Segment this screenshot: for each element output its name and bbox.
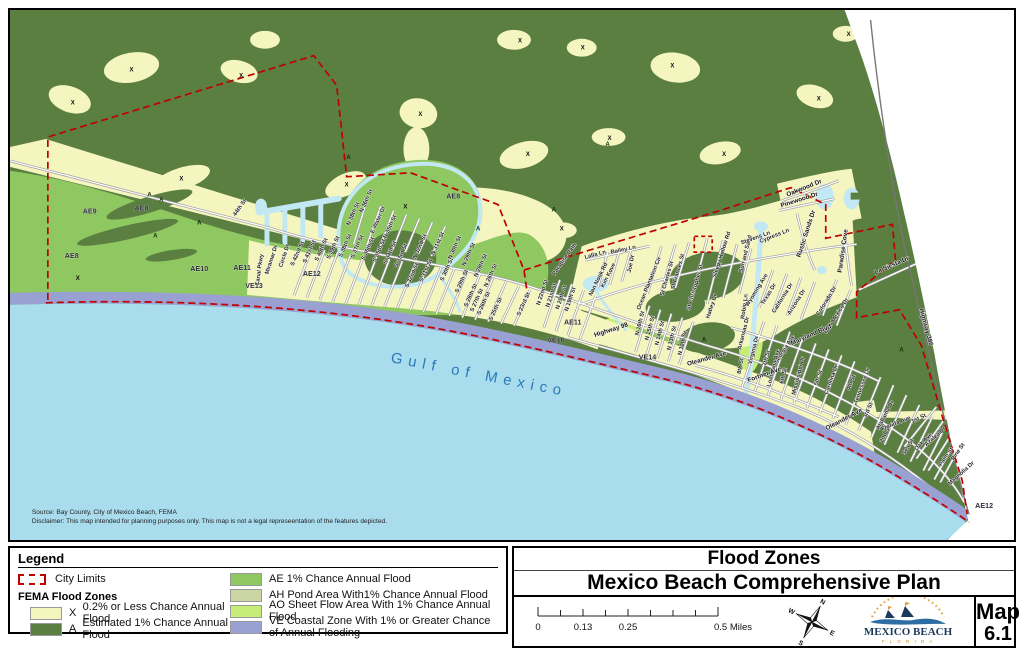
logo-boat-2: [901, 606, 914, 617]
zl-text: AE10: [190, 265, 208, 273]
map-title: Flood Zones: [514, 548, 1014, 571]
scale-0: 0: [535, 622, 540, 633]
legend-item-a: A Estimated 1% Chance Annual Flood: [30, 621, 230, 637]
xm-text: X: [581, 46, 585, 52]
xm-text: X: [403, 205, 407, 211]
scale-025: 0.25: [619, 622, 638, 633]
logo-boat-1: [885, 610, 895, 618]
zone-a-label: Estimated 1% Chance Annual Flood: [82, 617, 230, 641]
zone-ae-swatch: [230, 573, 262, 586]
compass-n: N: [819, 598, 827, 607]
scale-05-miles: 0.5 Miles: [714, 622, 752, 633]
map-number-label: Map: [976, 600, 1020, 623]
am-text: A: [147, 192, 152, 199]
xm-text: X: [722, 152, 726, 158]
mexico-beach-logo: MEXICO BEACH F L O R I D A: [856, 597, 960, 647]
xm-text: X: [179, 177, 183, 183]
xm-text: X: [817, 96, 821, 102]
zone-a-code: A: [69, 623, 82, 635]
compass-e: E: [828, 629, 836, 638]
zl-text: AE8: [135, 204, 149, 212]
legend-title: Legend: [18, 551, 498, 568]
scale-013: 0.13: [574, 622, 593, 633]
flood-zone-map: Gulf of Mexico AE9AE8AE8AE10AE11VE13AE12…: [8, 8, 1016, 542]
zone-ae-label: AE 1% Chance Annual Flood: [269, 573, 411, 585]
city-limits-icon: [18, 574, 46, 585]
xm-text: X: [130, 68, 134, 74]
map-number-value: 6.1: [984, 623, 1012, 645]
compass-rose-icon: N E S W: [780, 597, 844, 647]
xm-text: X: [76, 276, 80, 282]
compass-s: S: [797, 639, 805, 647]
map-number-box: Map 6.1: [974, 597, 1020, 647]
legend-city-limits-row: City Limits: [18, 571, 230, 587]
zone-a-swatch: [30, 623, 62, 636]
am-text: A: [153, 232, 158, 239]
city-limits-label: City Limits: [55, 573, 106, 585]
xm-text: X: [518, 39, 522, 45]
xm-text: X: [239, 73, 243, 79]
zl-text: AE11: [564, 319, 582, 327]
am-text: A: [552, 206, 557, 213]
zone-ve-label: VE Coastal Zone With 1% or Greater Chanc…: [269, 615, 498, 639]
compass-w: W: [787, 607, 796, 616]
xm-text: X: [345, 183, 349, 189]
map-disclaimer-note: Disclaimer: This map intended for planni…: [32, 518, 387, 525]
am-text: A: [346, 154, 351, 161]
xm-text: X: [670, 64, 674, 70]
logo-wordmark: MEXICO BEACH: [864, 626, 953, 638]
zl-text: AE8: [65, 252, 79, 260]
zl-text: VE16: [547, 337, 565, 345]
xm-text: X: [560, 226, 564, 232]
zl-text: AE8: [446, 193, 460, 201]
xm-text: X: [526, 152, 530, 158]
map-subtitle: Mexico Beach Comprehensive Plan: [514, 571, 1014, 597]
zone-x-swatch: [30, 607, 62, 620]
zone-ah-swatch: [230, 589, 262, 602]
map-canvas: Gulf of Mexico AE9AE8AE8AE10AE11VE13AE12…: [10, 10, 1014, 540]
am-text: A: [159, 197, 164, 204]
logo-flag-2: [905, 602, 910, 606]
xm-text: X: [71, 100, 75, 106]
legend-item-ve: VE Coastal Zone With 1% or Greater Chanc…: [230, 619, 498, 635]
xm-text: X: [847, 32, 851, 38]
xm-text: X: [418, 112, 422, 118]
zl-text: VE14: [639, 353, 657, 361]
zone-ve-swatch: [230, 621, 262, 634]
zone-ao-swatch: [230, 605, 262, 618]
logo-flag-1: [888, 606, 892, 610]
zl-text: AE9: [83, 207, 97, 215]
am-text: A: [702, 337, 707, 344]
scale-bar: 0 0.13 0.25 0.5 Miles: [530, 604, 780, 640]
legend: Legend City Limits FEMA Flood Zones X 0.…: [8, 546, 508, 634]
zone-x-code: X: [69, 607, 83, 619]
am-text: A: [899, 346, 904, 353]
map-source-note: Source: Bay County, City of Mexico Beach…: [32, 509, 178, 516]
am-text: A: [605, 141, 610, 148]
zl-text: AE11: [233, 264, 251, 272]
logo-wave: [870, 619, 946, 625]
legend-item-ae: AE 1% Chance Annual Flood: [230, 571, 498, 587]
zl-text: AE12: [975, 502, 993, 510]
am-text: A: [476, 225, 481, 232]
logo-subtext: F L O R I D A: [882, 639, 935, 644]
pond-notch: [851, 193, 860, 200]
zl-text: AE12: [303, 270, 321, 278]
am-text: A: [197, 219, 202, 226]
title-block: Flood Zones Mexico Beach Comprehensive P…: [512, 546, 1016, 648]
